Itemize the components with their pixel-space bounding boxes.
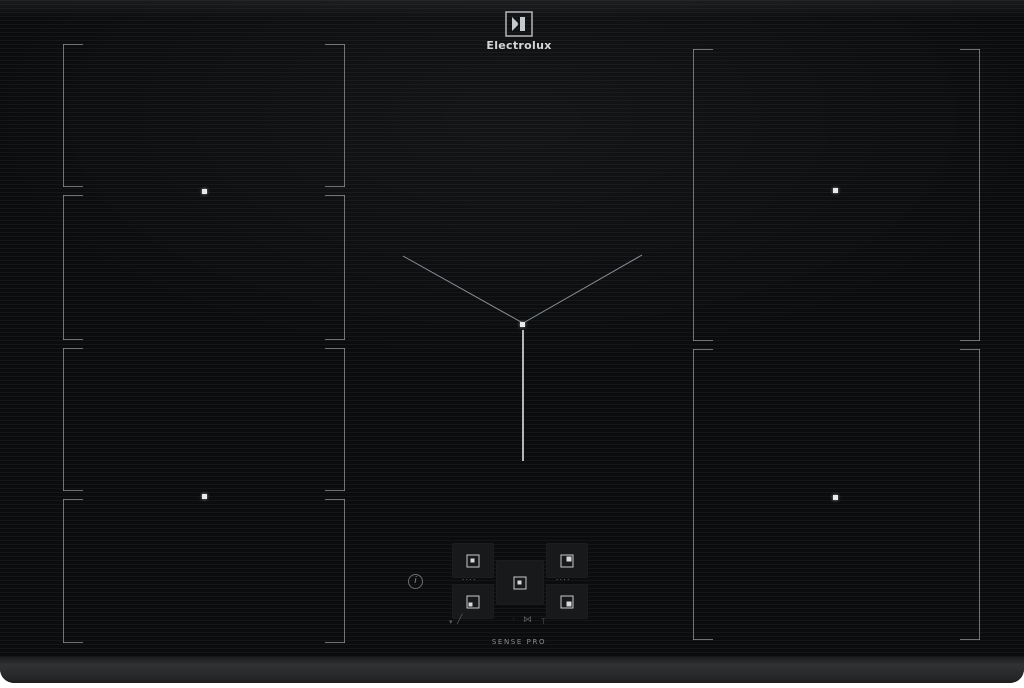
product-photo-induction-hob: Electrolux [0, 0, 1024, 688]
key-left-rear-zone[interactable] [452, 543, 494, 578]
left-power-dots: ···· [462, 577, 477, 584]
info-icon[interactable]: i [408, 574, 423, 589]
zone-square-dot-icon [467, 554, 480, 567]
key-right-front-zone[interactable] [546, 584, 588, 619]
key-right-rear-zone[interactable] [546, 543, 588, 578]
zone-left-rear-inner [63, 195, 345, 340]
zone-square-dot-icon [561, 595, 574, 608]
key-center-zone[interactable] [496, 560, 544, 605]
front-edge-bezel [0, 657, 1024, 683]
bridge-icon[interactable]: ⋈ [523, 616, 532, 625]
power-slide-icon[interactable]: ╱ [457, 616, 462, 625]
zone-dot-right-front [833, 495, 838, 500]
zone-left-rear-outer [63, 44, 345, 187]
zone-dot-left-rear [202, 189, 207, 194]
right-power-dots: ···· [556, 577, 571, 584]
zone-left-front-outer [63, 499, 345, 643]
electrolux-mark-icon [505, 11, 533, 37]
zone-square-dot-icon [561, 554, 574, 567]
brand-wordmark: Electrolux [471, 39, 567, 52]
brand-logo: Electrolux [471, 11, 567, 52]
pause-icon[interactable]: ▾ [449, 618, 453, 627]
sense-pro-label: SENSE PRO [459, 638, 579, 646]
key-left-front-zone[interactable] [452, 584, 494, 619]
hob-body: Electrolux [0, 0, 1024, 683]
dot-indicator-icon: · [512, 616, 515, 625]
zone-dot-left-front [202, 494, 207, 499]
zone-dot-right-rear [833, 188, 838, 193]
zone-square-dot-icon [514, 576, 527, 589]
zone-left-front-inner [63, 348, 345, 491]
zone-square-dot-icon [467, 595, 480, 608]
center-zone-arrow-marking [395, 248, 651, 468]
hob2hood-icon[interactable]: T [541, 617, 546, 626]
zone-dot-center [520, 322, 525, 327]
zone-right-rear [693, 49, 980, 341]
